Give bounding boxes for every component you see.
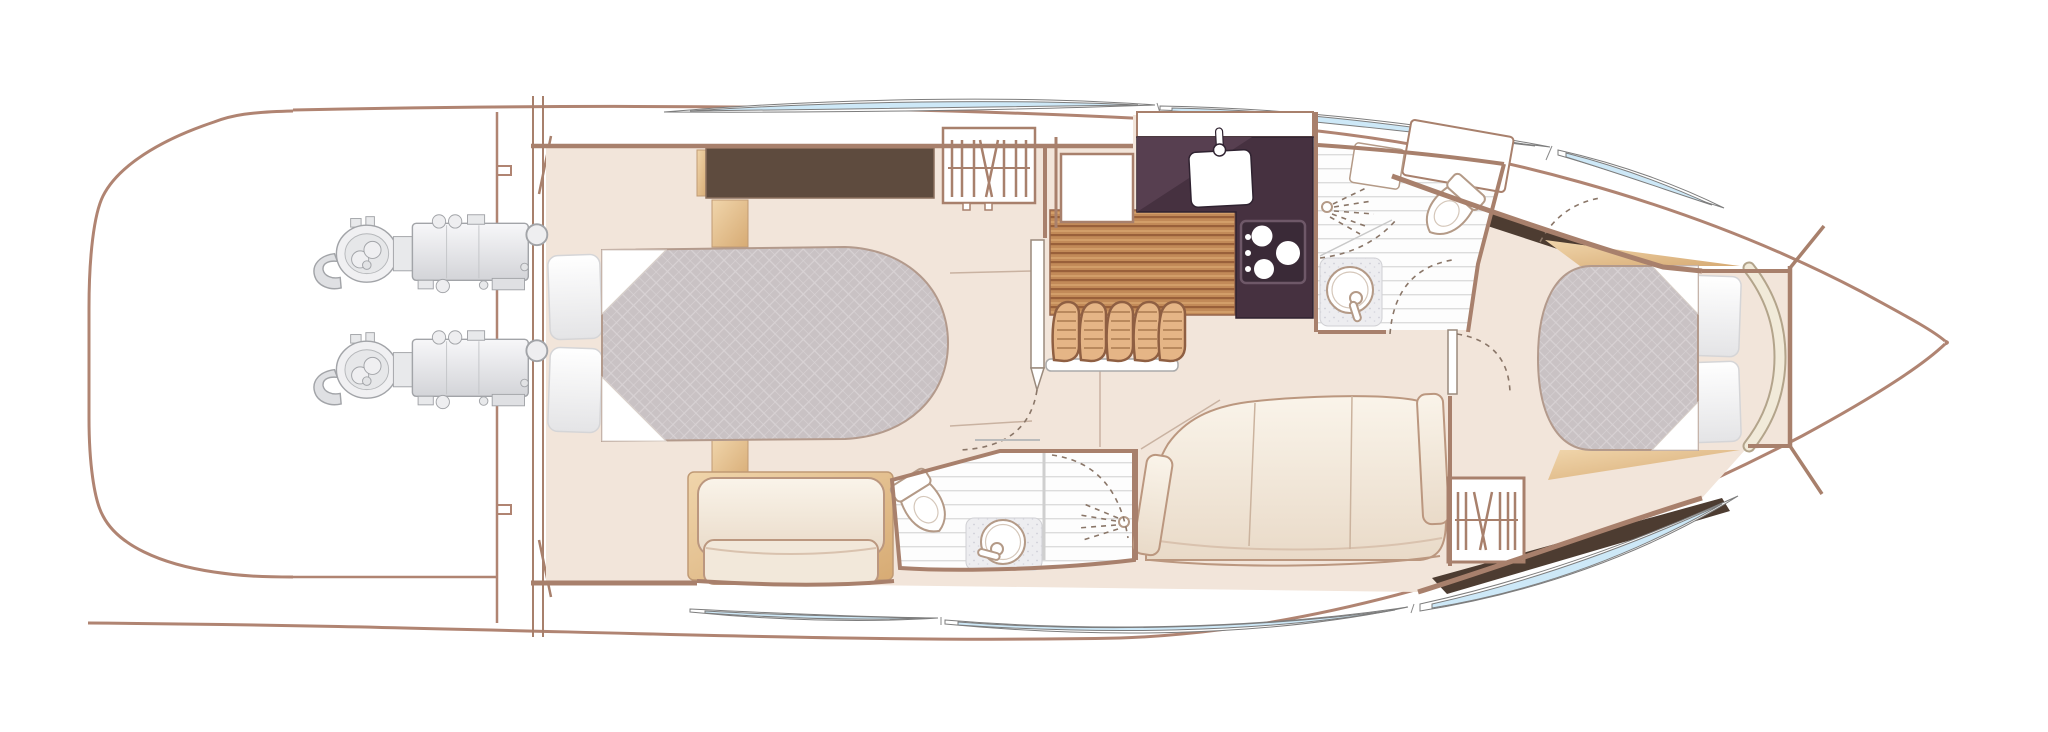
hanging-locker-aft: [943, 128, 1035, 210]
midship-bed: [548, 247, 948, 441]
floor-plan-page: [0, 0, 2048, 732]
forward-cabin-door: [1448, 330, 1457, 394]
engine-starboard: [314, 331, 547, 409]
galley-hob: [1241, 221, 1305, 283]
pillow: [548, 254, 603, 340]
companionway-stairs: [1053, 302, 1185, 361]
forward-hanging-locker: [1448, 478, 1524, 562]
midship-headboard-locker: [706, 148, 934, 198]
midship-sofa: [688, 472, 893, 584]
floor-plan-canvas: [0, 0, 2048, 732]
day-head-sink: [1320, 258, 1382, 326]
engine-port: [314, 215, 547, 293]
pillow: [548, 347, 603, 433]
teak-sole: [1050, 210, 1235, 315]
midship-cabin-door: [1031, 240, 1044, 368]
deck-hatch: [1061, 154, 1133, 222]
engine-room: [314, 215, 547, 409]
midship-bedside-top: [712, 200, 748, 247]
